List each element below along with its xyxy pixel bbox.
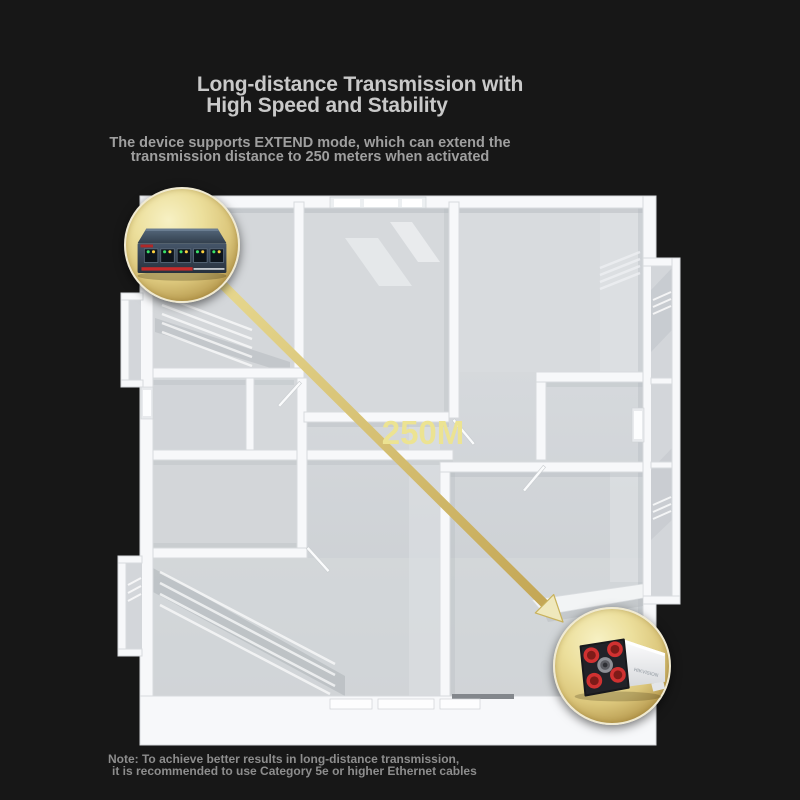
poe-switch-image [126,189,238,301]
footer-note: Note: To achieve better results in long-… [108,753,668,777]
distance-label: 250M [382,414,465,451]
switch-red-stripe [141,267,192,270]
top-window [330,197,426,208]
page-title: Long-distance Transmission with High Spe… [100,74,620,116]
camera-image: HIKVISION [555,609,669,723]
page-title-line1: Long-distance Transmission with [100,74,620,95]
camera-badge: HIKVISION [553,607,671,725]
switch-ports [144,249,223,263]
page-subtitle-line2: transmission distance to 250 meters when… [60,151,560,165]
switch-badge [124,187,240,303]
product-infographic: 250M [0,0,800,800]
footer-note-line2: it is recommended to use Category 5e or … [112,765,668,777]
switch-logo-mark [140,245,153,248]
page-subtitle: The device supports EXTEND mode, which c… [60,137,560,164]
floor-plan-scene: 250M [0,0,800,800]
page-title-line2: High Speed and Stability [67,95,587,116]
left-balconies [118,293,143,656]
camera-lens [597,657,613,673]
